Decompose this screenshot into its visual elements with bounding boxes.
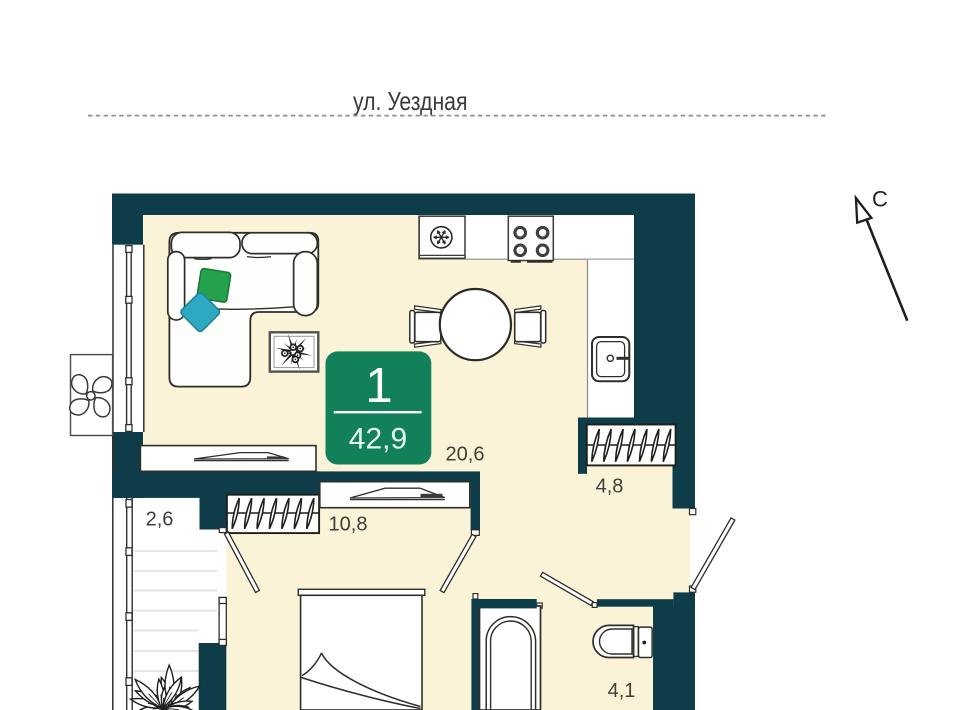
svg-text:1: 1	[365, 359, 392, 413]
svg-text:4,1: 4,1	[608, 680, 636, 702]
svg-text:42,9: 42,9	[349, 422, 407, 455]
svg-text:10,8: 10,8	[329, 513, 368, 535]
svg-text:20,6: 20,6	[446, 444, 485, 466]
svg-text:ул. Уездная: ул. Уездная	[353, 86, 468, 116]
svg-text:2,6: 2,6	[146, 508, 174, 530]
svg-text:4,8: 4,8	[596, 476, 624, 498]
svg-text:С: С	[872, 187, 888, 212]
